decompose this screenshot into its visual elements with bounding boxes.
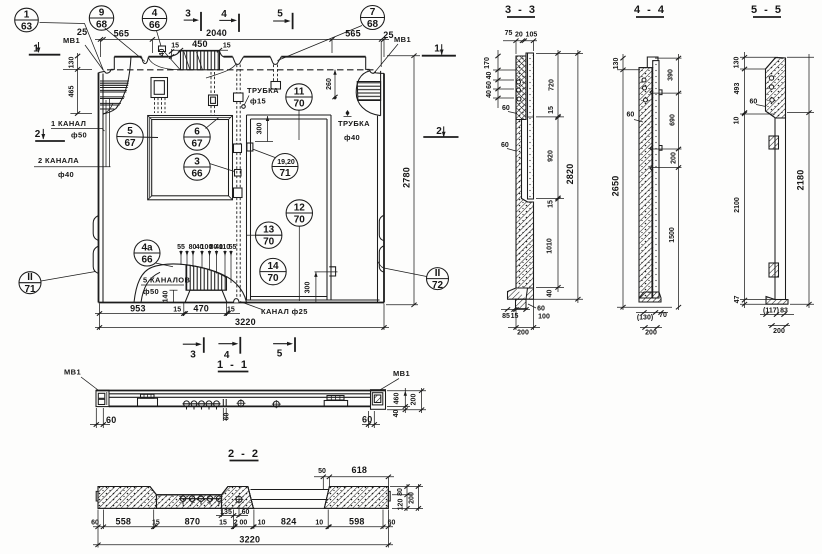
svg-text:200: 200 xyxy=(645,330,657,337)
svg-text:60: 60 xyxy=(627,112,635,119)
svg-text:6: 6 xyxy=(194,127,200,138)
svg-text:1 - 1: 1 - 1 xyxy=(217,359,249,371)
svg-text:200: 200 xyxy=(671,152,678,164)
svg-text:70: 70 xyxy=(267,273,279,284)
svg-text:5 КАНАЛОВ: 5 КАНАЛОВ xyxy=(143,276,190,285)
svg-text:1: 1 xyxy=(24,10,30,21)
svg-text:70: 70 xyxy=(263,237,275,248)
svg-text:25: 25 xyxy=(383,30,393,40)
svg-text:135: 135 xyxy=(220,509,232,516)
svg-text:3: 3 xyxy=(185,9,191,20)
svg-text:85: 85 xyxy=(502,313,510,320)
svg-text:66: 66 xyxy=(141,255,153,266)
svg-text:1 КАНАЛ: 1 КАНАЛ xyxy=(51,119,86,128)
svg-text:130: 130 xyxy=(734,57,741,69)
svg-text:66: 66 xyxy=(191,169,203,180)
svg-text:71: 71 xyxy=(279,168,291,179)
svg-text:450: 450 xyxy=(192,39,208,49)
svg-text:66: 66 xyxy=(149,20,161,31)
svg-text:55: 55 xyxy=(177,244,185,251)
svg-text:493: 493 xyxy=(734,83,741,95)
svg-text:67: 67 xyxy=(191,139,203,150)
svg-text:40: 40 xyxy=(393,410,400,418)
svg-text:720: 720 xyxy=(549,79,556,91)
svg-text:60: 60 xyxy=(106,415,116,425)
svg-text:ТРУБКА: ТРУБКА xyxy=(247,86,279,95)
svg-text:3: 3 xyxy=(190,350,196,361)
svg-text:ф40: ф40 xyxy=(344,133,360,142)
svg-text:300: 300 xyxy=(305,282,312,294)
svg-text:15: 15 xyxy=(152,520,160,527)
svg-text:130: 130 xyxy=(69,57,76,69)
svg-text:4: 4 xyxy=(152,8,158,19)
svg-text:4: 4 xyxy=(221,9,227,20)
svg-text:170: 170 xyxy=(484,57,491,69)
svg-text:5: 5 xyxy=(277,349,283,360)
svg-text:200: 200 xyxy=(517,330,529,337)
svg-text:2: 2 xyxy=(436,126,442,137)
svg-text:ф40: ф40 xyxy=(58,170,74,179)
svg-text:105: 105 xyxy=(526,32,538,39)
svg-text:19,20: 19,20 xyxy=(277,159,295,166)
svg-text:870: 870 xyxy=(185,517,201,527)
svg-text:83: 83 xyxy=(780,308,788,315)
svg-text:72: 72 xyxy=(432,280,444,291)
svg-text:3220: 3220 xyxy=(235,317,256,327)
svg-text:15: 15 xyxy=(548,106,555,114)
svg-text:40: 40 xyxy=(486,90,493,98)
svg-text:13: 13 xyxy=(263,225,275,236)
svg-text:(130): (130) xyxy=(637,315,653,322)
svg-text:1010: 1010 xyxy=(547,238,554,254)
svg-text:50: 50 xyxy=(318,468,326,475)
svg-text:68: 68 xyxy=(367,19,379,30)
svg-text:4а: 4а xyxy=(141,243,153,254)
svg-text:МВ1: МВ1 xyxy=(63,36,80,45)
svg-text:20: 20 xyxy=(515,32,523,39)
svg-text:100: 100 xyxy=(538,314,550,321)
svg-text:10: 10 xyxy=(258,520,266,527)
svg-text:ф50: ф50 xyxy=(71,131,87,140)
svg-text:60: 60 xyxy=(362,415,372,425)
svg-text:2 КАНАЛА: 2 КАНАЛА xyxy=(38,156,79,165)
svg-text:60: 60 xyxy=(388,520,396,527)
svg-text:2780: 2780 xyxy=(402,167,412,188)
svg-text:618: 618 xyxy=(351,465,367,475)
svg-text:67: 67 xyxy=(124,138,136,149)
svg-text:80: 80 xyxy=(397,488,404,496)
svg-text:ф15: ф15 xyxy=(250,97,266,106)
svg-text:130: 130 xyxy=(613,58,620,70)
svg-text:60: 60 xyxy=(224,413,231,421)
svg-text:70: 70 xyxy=(294,215,306,226)
svg-text:63: 63 xyxy=(21,22,33,33)
svg-text:5 - 5: 5 - 5 xyxy=(751,4,783,16)
svg-text:60: 60 xyxy=(502,105,510,112)
svg-text:2040: 2040 xyxy=(206,28,227,38)
svg-text:1500: 1500 xyxy=(669,227,676,243)
svg-text:МВ1: МВ1 xyxy=(64,368,81,377)
svg-text:II: II xyxy=(27,272,33,283)
svg-text:11: 11 xyxy=(294,87,305,98)
svg-text:3 - 3: 3 - 3 xyxy=(505,4,537,16)
svg-text:12: 12 xyxy=(294,203,306,214)
svg-text:9: 9 xyxy=(99,8,105,19)
svg-text:15: 15 xyxy=(219,520,227,527)
svg-text:565: 565 xyxy=(345,29,361,39)
svg-text:120: 120 xyxy=(398,499,405,511)
svg-text:7: 7 xyxy=(370,7,376,18)
svg-text:71: 71 xyxy=(24,284,36,295)
svg-text:70: 70 xyxy=(293,99,305,110)
svg-text:140: 140 xyxy=(163,291,170,303)
svg-text:75: 75 xyxy=(505,30,513,37)
svg-text:953: 953 xyxy=(130,303,146,313)
svg-text:4 - 4: 4 - 4 xyxy=(634,4,666,16)
svg-text:920: 920 xyxy=(548,150,555,162)
svg-text:40: 40 xyxy=(547,290,554,298)
svg-text:14: 14 xyxy=(267,261,279,272)
svg-text:55: 55 xyxy=(229,244,237,251)
svg-text:60: 60 xyxy=(486,81,493,89)
svg-text:200: 200 xyxy=(409,492,416,504)
svg-text:2 00: 2 00 xyxy=(234,520,248,527)
svg-text:460: 460 xyxy=(394,393,401,405)
svg-text:10: 10 xyxy=(734,117,741,125)
svg-text:(117): (117) xyxy=(763,308,779,315)
svg-text:5: 5 xyxy=(127,126,133,137)
svg-text:15: 15 xyxy=(223,43,231,50)
svg-text:МВ1: МВ1 xyxy=(393,369,410,378)
svg-text:690: 690 xyxy=(670,114,677,126)
svg-text:470: 470 xyxy=(193,303,209,313)
svg-text:1: 1 xyxy=(434,43,440,54)
svg-text:2 - 2: 2 - 2 xyxy=(228,448,260,460)
svg-text:II: II xyxy=(435,268,441,279)
svg-text:260: 260 xyxy=(326,78,333,90)
svg-text:ТРУБКА: ТРУБКА xyxy=(338,119,370,128)
svg-text:2180: 2180 xyxy=(796,170,806,191)
svg-text:5: 5 xyxy=(277,8,283,19)
svg-text:15: 15 xyxy=(171,43,179,50)
svg-text:200: 200 xyxy=(411,394,418,406)
svg-text:2100: 2100 xyxy=(734,197,741,213)
svg-text:60: 60 xyxy=(537,306,545,313)
svg-text:60: 60 xyxy=(501,142,509,149)
svg-text:558: 558 xyxy=(115,517,131,527)
svg-text:10: 10 xyxy=(315,520,323,527)
svg-text:200: 200 xyxy=(773,328,785,335)
svg-text:598: 598 xyxy=(349,517,365,527)
svg-text:2: 2 xyxy=(35,129,41,140)
svg-text:3: 3 xyxy=(194,157,200,168)
svg-text:390: 390 xyxy=(668,69,675,81)
svg-text:ф50: ф50 xyxy=(143,287,159,296)
svg-text:300: 300 xyxy=(257,123,264,135)
svg-text:15: 15 xyxy=(548,200,555,208)
svg-text:60: 60 xyxy=(242,509,250,516)
svg-text:15: 15 xyxy=(511,313,519,320)
svg-text:МВ1: МВ1 xyxy=(394,35,411,44)
svg-text:2820: 2820 xyxy=(565,164,575,185)
svg-text:15: 15 xyxy=(173,306,181,313)
svg-text:КАНАЛ ф25: КАНАЛ ф25 xyxy=(261,307,308,316)
svg-text:465: 465 xyxy=(69,86,76,98)
svg-text:3220: 3220 xyxy=(239,534,260,544)
svg-text:47: 47 xyxy=(734,296,741,304)
svg-text:40: 40 xyxy=(486,72,493,80)
svg-text:2650: 2650 xyxy=(611,176,621,197)
svg-text:15: 15 xyxy=(227,306,235,313)
svg-text:824: 824 xyxy=(281,517,297,527)
